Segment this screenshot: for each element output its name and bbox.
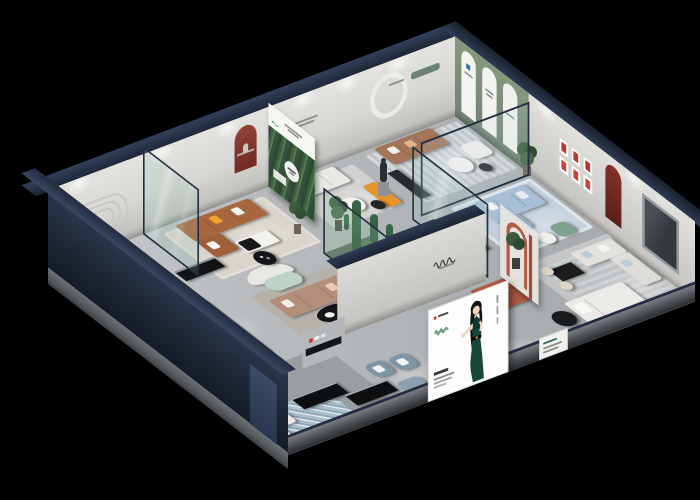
- poster-vertical-caption: [497, 294, 500, 325]
- statue: [376, 158, 392, 198]
- banner-logo: [466, 63, 470, 71]
- arched-banner: [461, 47, 475, 122]
- poster-red-mark: [434, 316, 437, 320]
- teal-wall-slot: [411, 62, 440, 80]
- entry-glow: [250, 363, 277, 444]
- potted-plant: [504, 232, 526, 272]
- brand-script-logo: [432, 246, 461, 273]
- mural-logo: [272, 108, 280, 118]
- red-arch-niche: [605, 160, 621, 228]
- showroom-render: { "scene": { "title": "Isometric cutaway…: [0, 0, 700, 500]
- vase: [243, 142, 248, 153]
- red-framed-prints: [559, 137, 594, 198]
- mural-emblem: [285, 157, 299, 186]
- potted-plant: [288, 202, 306, 236]
- poster-woman-illustration: [459, 292, 495, 389]
- circle-arch: [370, 66, 407, 124]
